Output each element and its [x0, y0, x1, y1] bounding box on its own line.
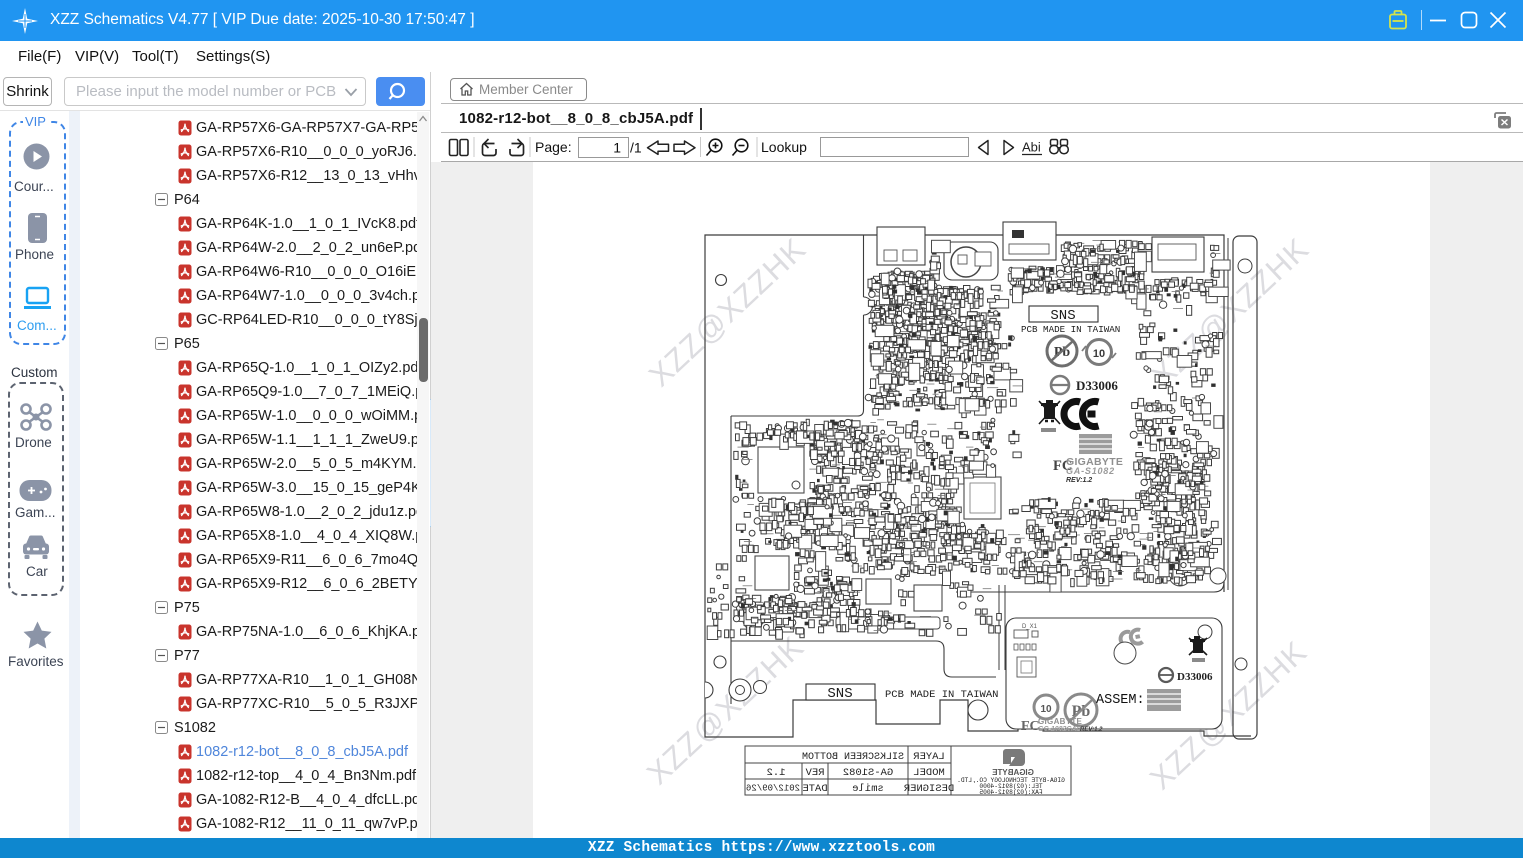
- svg-text:10: 10: [1040, 704, 1052, 715]
- svg-text:GIGABYTE: GIGABYTE: [991, 768, 1033, 777]
- svg-text:1: 1: [613, 140, 621, 156]
- svg-text:DESIGNER: DESIGNER: [903, 783, 954, 795]
- svg-text:LAYER: LAYER: [913, 751, 945, 763]
- svg-text:SNS: SNS: [1050, 308, 1075, 324]
- svg-text:REV:1.2: REV:1.2: [1066, 477, 1092, 484]
- svg-text:FAX:(02)8912-4005: FAX:(02)8912-4005: [979, 789, 1042, 796]
- svg-text:Lookup: Lookup: [761, 139, 807, 155]
- svg-text:Page:: Page:: [535, 139, 572, 155]
- svg-text:D_X1: D_X1: [1022, 624, 1038, 630]
- svg-text:GA-S1082: GA-S1082: [843, 767, 893, 779]
- svg-text:SNS: SNS: [827, 686, 852, 702]
- svg-text:2012/09/26: 2012/09/26: [746, 784, 800, 794]
- svg-text:1.2: 1.2: [767, 767, 786, 779]
- svg-text:D33006: D33006: [1177, 671, 1213, 683]
- svg-text:smile: smile: [852, 783, 884, 795]
- svg-text:FC: FC: [1021, 719, 1040, 734]
- svg-text:Abi: Abi: [1022, 140, 1041, 155]
- svg-text:PCB MADE IN TAIWAN: PCB MADE IN TAIWAN: [1021, 324, 1120, 335]
- svg-text:GA-S1082: GA-S1082: [1066, 466, 1115, 476]
- svg-text:MODEL: MODEL: [913, 767, 945, 779]
- svg-text:ASSEM:: ASSEM:: [1096, 693, 1145, 708]
- svg-text:GC-1082CAB: GC-1082CAB: [1038, 726, 1082, 733]
- svg-text:REV: REV: [805, 767, 825, 779]
- svg-text:PCB MADE IN TAIWAN: PCB MADE IN TAIWAN: [885, 689, 998, 701]
- svg-text:DATE: DATE: [802, 783, 827, 795]
- svg-text:D33006: D33006: [1076, 378, 1118, 393]
- svg-text:SILKSCREEN BOTTOM: SILKSCREEN BOTTOM: [802, 752, 904, 763]
- svg-text:10: 10: [1093, 348, 1105, 360]
- svg-text:/1: /1: [630, 140, 642, 156]
- svg-text:GIGABYTE: GIGABYTE: [1038, 717, 1083, 726]
- svg-text:REV:1.2: REV:1.2: [1080, 727, 1103, 733]
